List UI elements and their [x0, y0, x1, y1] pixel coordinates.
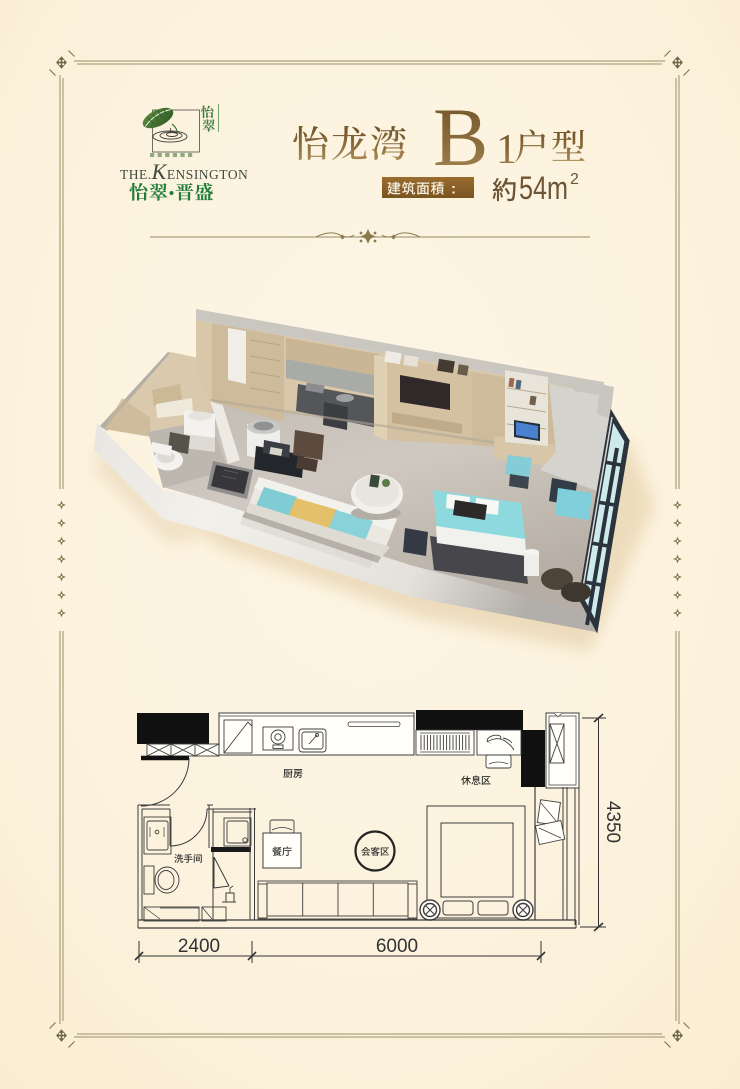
svg-text::: :: [451, 181, 456, 198]
svg-text:2: 2: [570, 171, 579, 188]
svg-text:B: B: [433, 91, 488, 183]
svg-text:54m: 54m: [519, 170, 568, 206]
svg-text:1: 1: [496, 127, 517, 173]
svg-text:2400: 2400: [178, 936, 220, 957]
svg-text:6000: 6000: [376, 936, 418, 957]
svg-text:4350: 4350: [602, 801, 623, 843]
